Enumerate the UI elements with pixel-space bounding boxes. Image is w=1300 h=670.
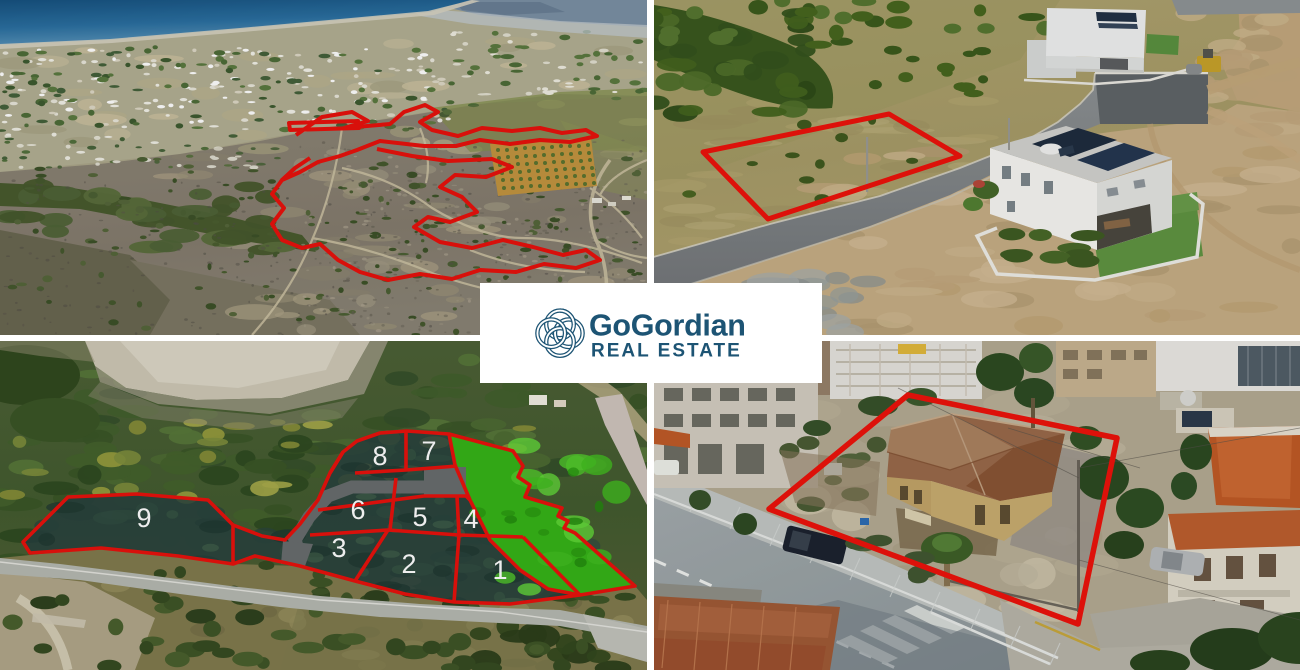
svg-text:REAL ESTATE: REAL ESTATE — [591, 341, 742, 362]
svg-text:GoGordian: GoGordian — [589, 309, 746, 343]
